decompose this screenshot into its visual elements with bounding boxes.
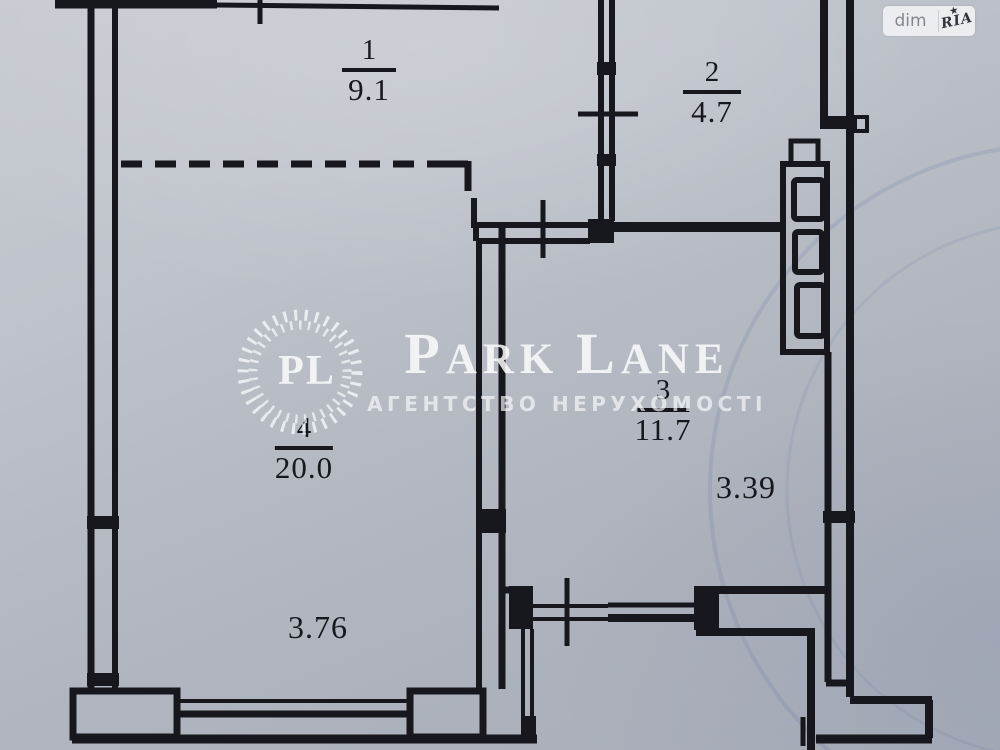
wall-joint xyxy=(820,116,854,129)
wall-joint xyxy=(588,219,614,243)
window xyxy=(178,701,411,714)
dashed-line-corner xyxy=(446,161,468,191)
door-jamb xyxy=(509,586,533,629)
room-number: 1 xyxy=(342,36,396,65)
ria-logo: RIA★ xyxy=(938,9,977,32)
wall-notch xyxy=(855,117,867,131)
stamp-arc xyxy=(710,145,1000,750)
brand-rest: ANE xyxy=(621,336,730,383)
dim-ria-badge: dim RIA★ xyxy=(883,6,975,36)
brand-initial: L xyxy=(576,321,621,386)
room-number: 2 xyxy=(683,58,741,87)
watermark-subtitle: АГЕНТСТВО НЕРУХОМОСТІ xyxy=(367,392,767,416)
dim-logo: dim xyxy=(883,11,938,31)
watermark-brand: PARK LANE xyxy=(404,325,729,398)
wall-joint xyxy=(823,511,855,523)
wall-pier xyxy=(410,691,483,737)
door-jamb xyxy=(694,586,719,630)
vent-shaft xyxy=(783,141,827,352)
wall-joint xyxy=(87,673,119,686)
wall-joint xyxy=(597,62,616,75)
wall-pier xyxy=(73,691,177,737)
brand-initial: P xyxy=(404,321,445,386)
wall-joint xyxy=(476,509,506,533)
room-label-1: 1 9.1 xyxy=(342,36,396,105)
room-area: 9.1 xyxy=(342,74,396,105)
wall-joint xyxy=(87,516,119,529)
room-area: 11.7 xyxy=(634,414,691,445)
door-opening xyxy=(533,578,695,646)
watermark-monogram: PL xyxy=(278,347,336,395)
brand-space xyxy=(559,336,576,383)
wall-joint xyxy=(597,154,616,166)
room-label-2: 2 4.7 xyxy=(683,58,741,127)
floorplan-photo: 1 9.1 2 4.7 3 11.7 4 20.0 3.76 3.39 PL P… xyxy=(0,0,1000,750)
brand-rest: ARK xyxy=(446,336,560,383)
dimension-label-width: 3.76 xyxy=(288,611,348,643)
ria-star-icon: ★ xyxy=(949,5,960,17)
dimension-label-width: 3.39 xyxy=(716,471,776,503)
room-area: 4.7 xyxy=(683,96,741,127)
room-area: 20.0 xyxy=(275,452,333,483)
